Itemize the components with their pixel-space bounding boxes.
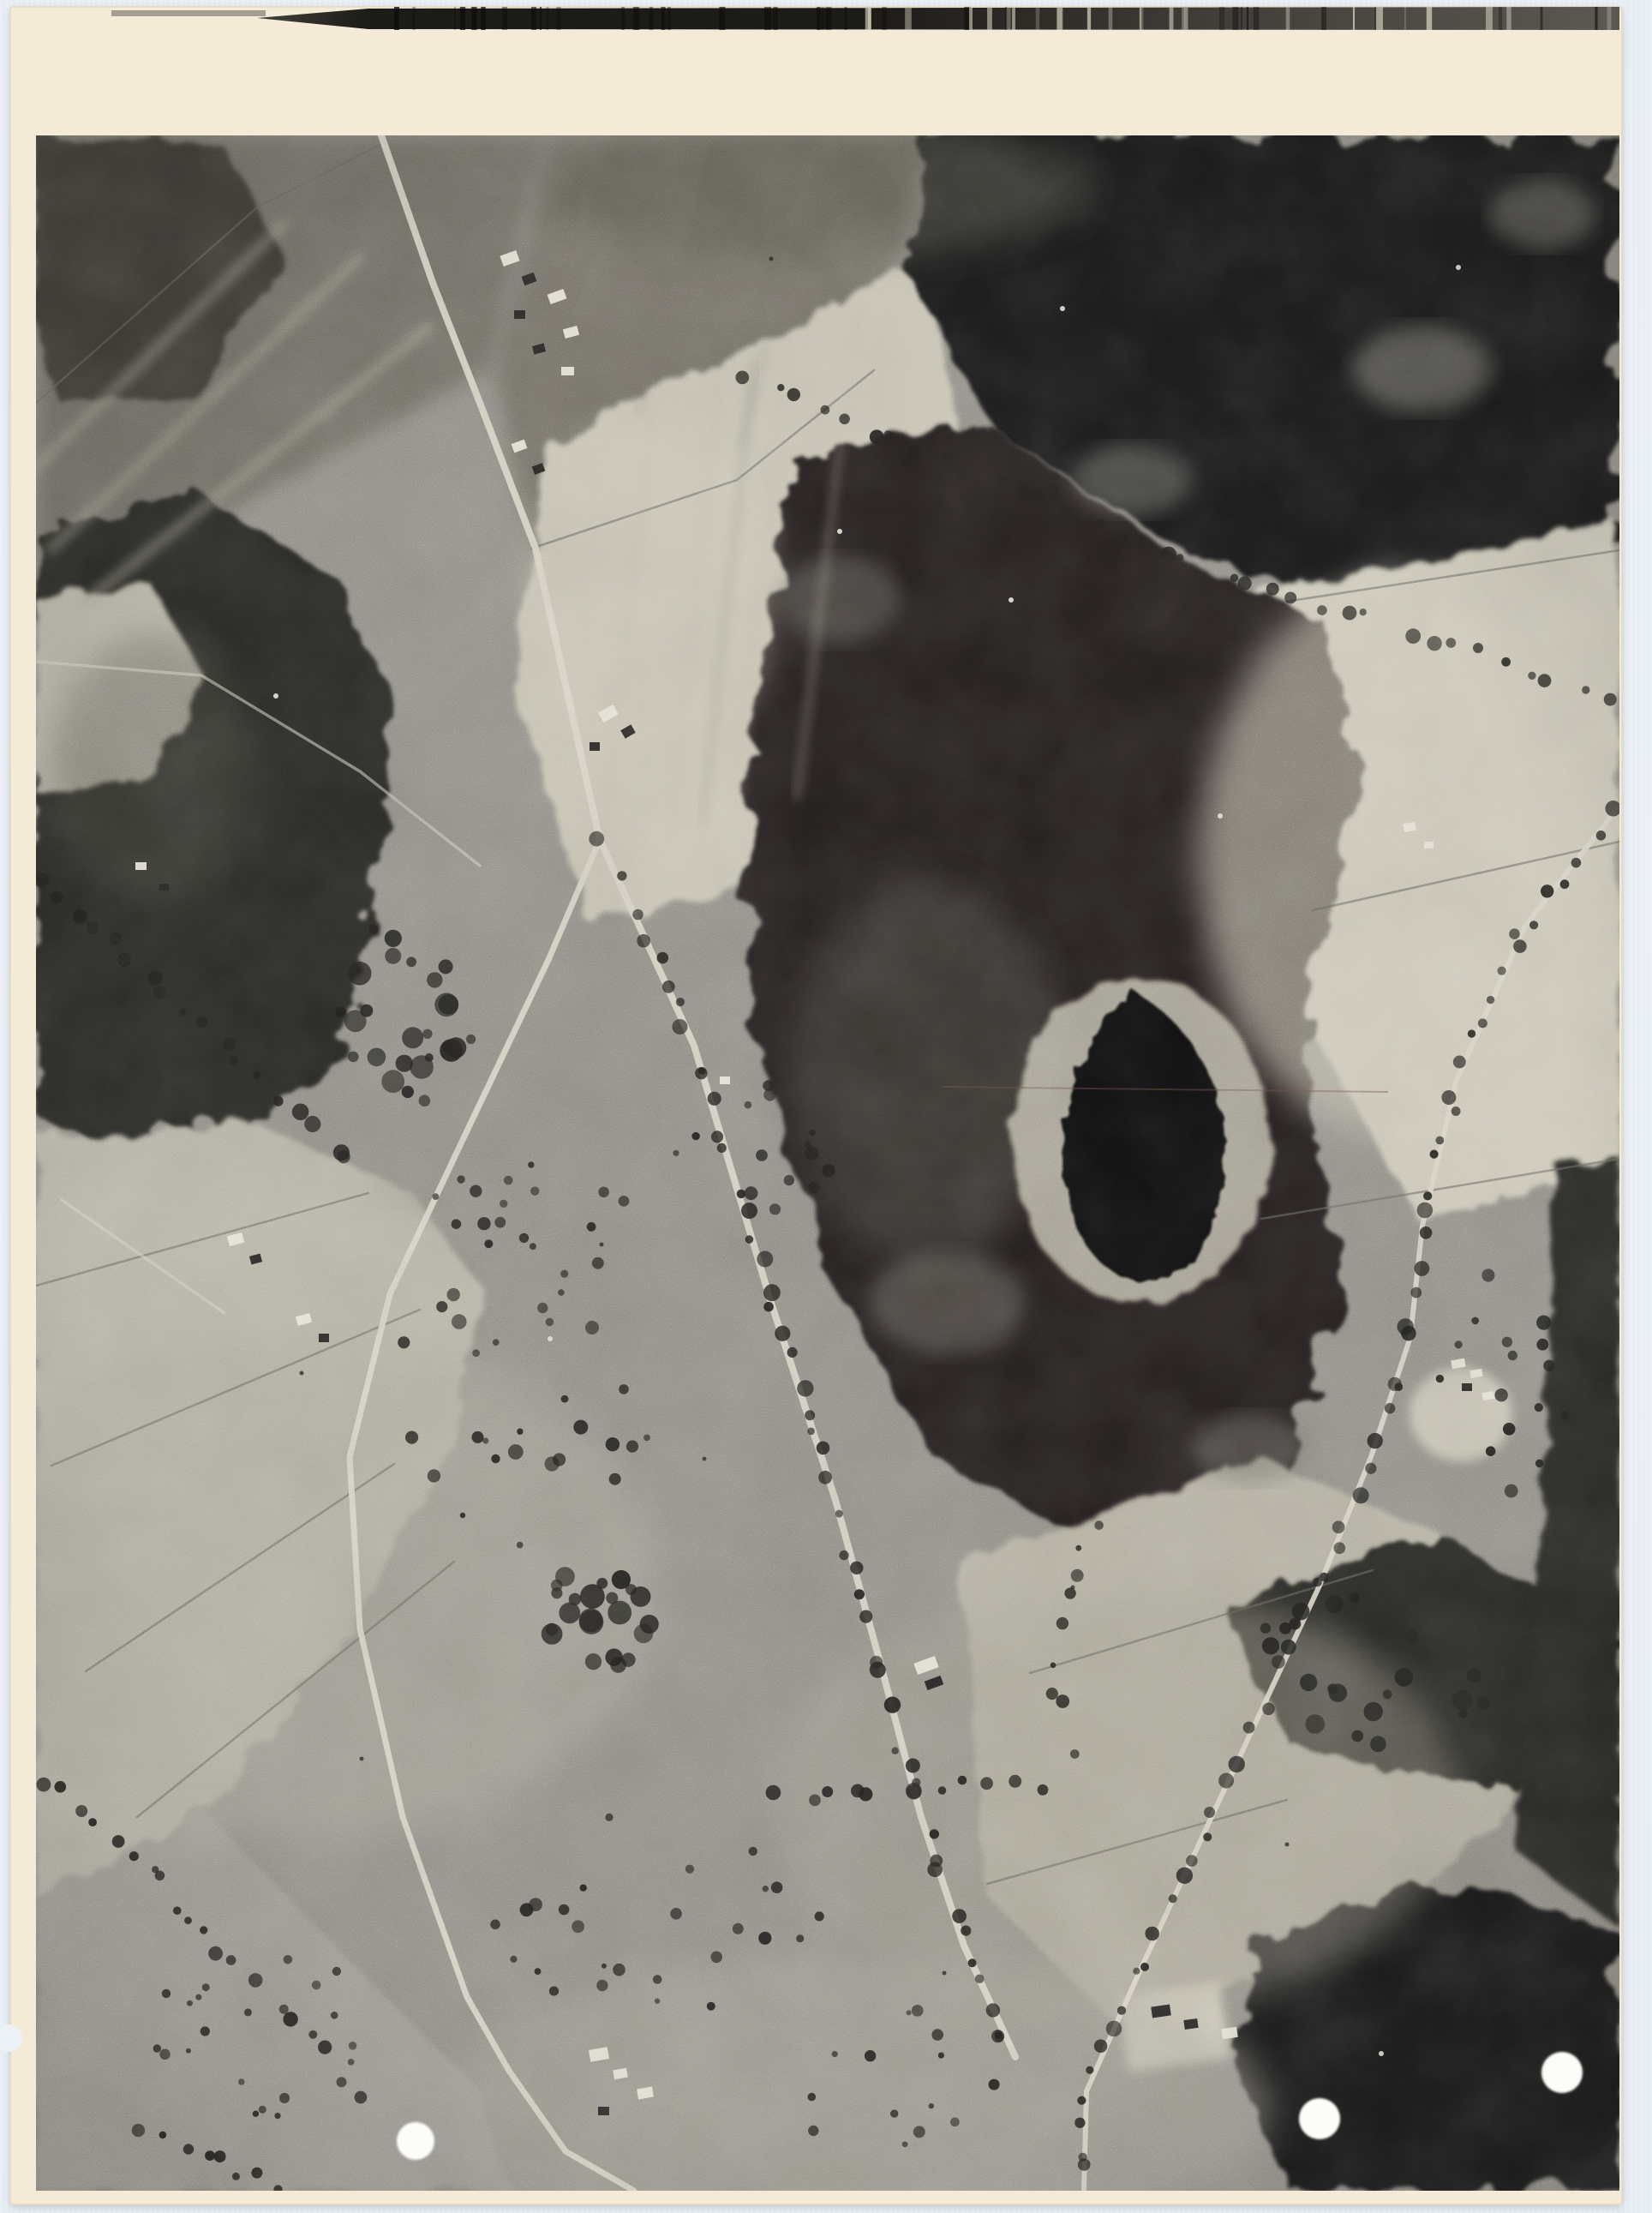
punch-hole (1541, 2052, 1583, 2093)
punch-hole (1299, 2098, 1340, 2139)
aerial-photograph (0, 0, 1652, 2213)
film-grain-overlay (36, 135, 1619, 2191)
punch-hole (397, 2122, 434, 2160)
photo-image (0, 120, 1621, 2213)
